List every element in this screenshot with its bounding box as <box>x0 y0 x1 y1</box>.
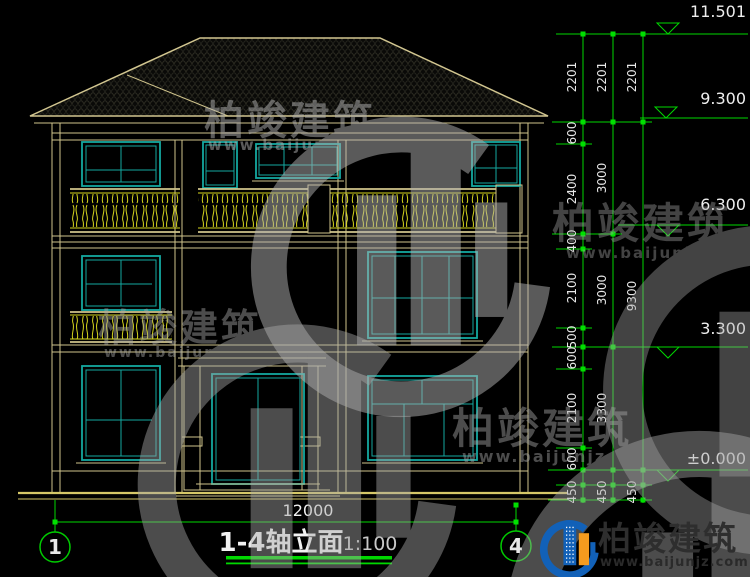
dim-label: 2201 <box>625 62 639 93</box>
elevation-marker-top: 11.501 <box>657 2 746 34</box>
elevation-marker-eave: 9.300 <box>640 89 748 118</box>
brand-logo-url: www.baijunjz.com <box>600 555 749 570</box>
dim-label: 600 <box>565 122 579 145</box>
window-2f-left <box>82 256 160 310</box>
dim-label: 600 <box>565 347 579 370</box>
watermark-brand-text: 柏竣建筑 <box>98 306 262 350</box>
dim-label: 3000 <box>595 275 609 306</box>
dim-label: 3000 <box>595 163 609 194</box>
brand-logo-text: 柏竣建筑 <box>598 519 738 558</box>
cad-canvas: 2201 600 2400 400 2100 500 600 2100 600 … <box>0 0 750 577</box>
elevation-drawing: 2201 600 2400 400 2100 500 600 2100 600 … <box>0 0 750 577</box>
railing-segment <box>70 189 180 232</box>
dim-label: 2100 <box>565 273 579 304</box>
elevation-triangle-icon <box>655 107 677 118</box>
elevation-label: 9.300 <box>700 89 746 108</box>
brand-logo-bottom-right: 柏竣建筑 www.baijunjz.com <box>544 519 749 575</box>
window-3f-left <box>82 142 160 186</box>
axis-number: 1 <box>48 535 62 559</box>
watermark-mid-left: 柏竣建筑 www.baijunjz.com <box>98 306 437 577</box>
dim-label: 500 <box>565 326 579 349</box>
axis-bubble-1: 1 <box>40 532 70 562</box>
watermark-url-text: www.baijunjz.com <box>462 447 657 466</box>
watermark-brand-text: 柏竣建筑 <box>552 199 732 248</box>
elevation-triangle-icon <box>657 347 679 358</box>
watermark-url-text: www.baijunjz.com <box>566 244 750 262</box>
watermark-url-text: www.baijunjz.com <box>208 136 393 154</box>
dim-label: 2201 <box>595 62 609 93</box>
elevation-label: 11.501 <box>690 2 746 21</box>
watermark-url-text: www.baijunjz.com <box>104 345 279 361</box>
dim-label: 2201 <box>565 62 579 93</box>
watermark-brand-text: 柏竣建筑 <box>452 404 632 453</box>
elevation-triangle-icon <box>657 23 679 34</box>
